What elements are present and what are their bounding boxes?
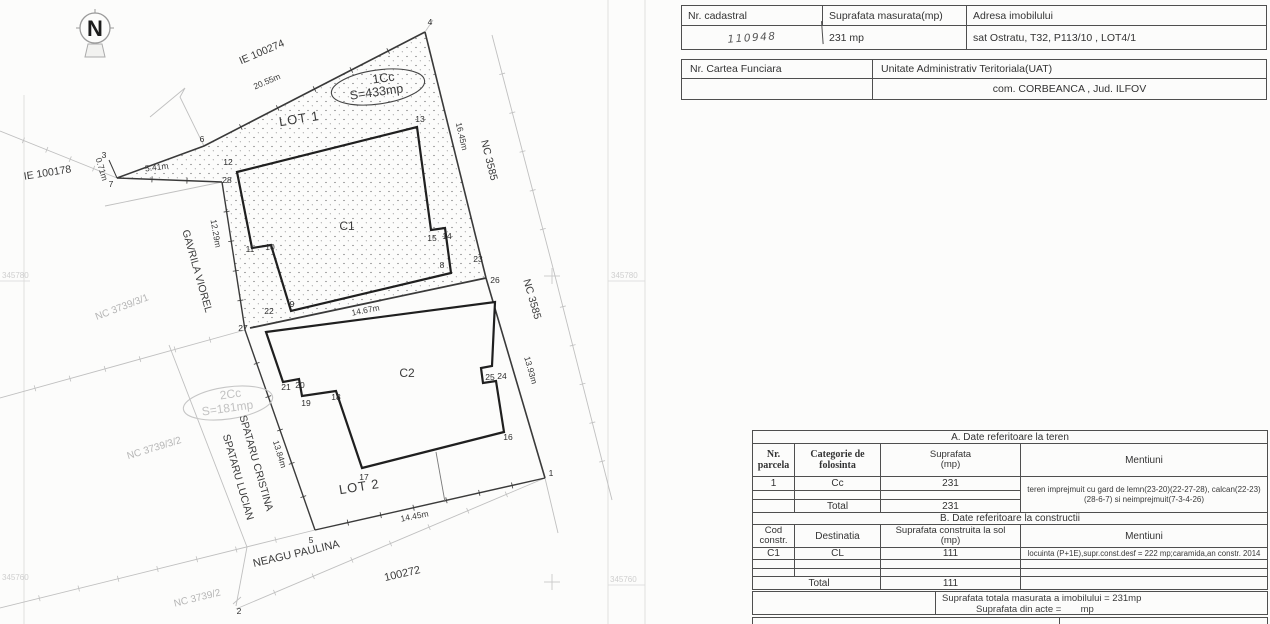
total-measured-surface-line: Suprafata totala masurata a imobilului =… xyxy=(942,593,1141,604)
owner-neagu-paulina: NEAGU PAULINA xyxy=(252,538,342,570)
uat-value: com. CORBEANCA , Jud. ILFOV xyxy=(873,79,1266,99)
point-label-9: 9 xyxy=(290,299,295,309)
point-label-10: 10 xyxy=(265,242,275,252)
section-a-title: A. Date referitoare la teren xyxy=(753,431,1267,444)
land-total-label: Total xyxy=(795,500,881,513)
col-header-construction-code: Cod constr. xyxy=(753,525,795,548)
point-label-8: 8 xyxy=(440,260,445,270)
built-surface-cell: 111 xyxy=(881,548,1021,560)
lot2-inner-line xyxy=(436,452,445,502)
empty-cell xyxy=(881,491,1021,500)
north-letter: N xyxy=(87,16,103,41)
destination-cell: CL xyxy=(795,548,881,560)
point-label-26: 26 xyxy=(490,275,500,285)
dim-12-29m: 12.29m xyxy=(209,219,224,249)
neighbor-ie100178: IE 100178 xyxy=(23,163,72,182)
point-label-18: 18 xyxy=(331,392,341,402)
construction-mentions-cell: locuinta (P+1E),supr.const.desf = 222 mp… xyxy=(1021,548,1267,560)
point-label-24: 24 xyxy=(497,371,507,381)
dim-13-93m: 13.93m xyxy=(522,355,539,385)
point-label-20: 20 xyxy=(295,380,305,390)
empty-cell xyxy=(1021,569,1267,577)
col-header-parcel-number: Nr. parcela xyxy=(753,444,795,477)
col-header-construction-mentions: Mentiuni xyxy=(1021,525,1267,548)
measured-surface-value: 231 mp xyxy=(823,26,967,49)
point-label-19: 19 xyxy=(301,398,311,408)
address-value: sat Ostratu, T32, P113/10 , LOT4/1 xyxy=(967,26,1266,49)
dim-14-45m: 14.45m xyxy=(400,508,430,523)
empty-cell xyxy=(1021,560,1267,569)
owner-gavrila-viorel: GAVRILA VIOREL xyxy=(179,228,214,314)
point-label-12: 12 xyxy=(223,157,233,167)
neighbor-100272: 100272 xyxy=(383,564,421,584)
point-label-14: 14 xyxy=(442,231,452,241)
cadastral-header-table: Nr. cadastral Suprafata masurata(mp) Adr… xyxy=(681,5,1267,50)
cadastral-plan-document: N LOT 1 LOT 2 C1 C2 1Cc S=433mp 2Cc S=18… xyxy=(0,0,1270,624)
empty-cell xyxy=(753,560,795,569)
point-label-15: 15 xyxy=(427,233,437,243)
grid-coord-bottomleft: 345760 xyxy=(2,573,29,582)
survey-map: N LOT 1 LOT 2 C1 C2 1Cc S=433mp 2Cc S=18… xyxy=(0,0,665,624)
footer-empty-cell xyxy=(753,592,936,614)
construction-total-label: Total xyxy=(753,577,881,589)
point-label-23: 23 xyxy=(473,254,483,264)
point-label-11: 11 xyxy=(246,244,255,254)
empty-cell xyxy=(753,491,795,500)
point-label-4: 4 xyxy=(428,17,433,27)
neighbor-nc3585-upper: NC 3585 xyxy=(478,139,500,182)
point-label-5: 5 xyxy=(309,535,314,545)
dim-20-55m: 20.55m xyxy=(252,71,282,91)
point-label-21: 21 xyxy=(281,382,291,392)
point-label-17: 17 xyxy=(359,472,369,482)
land-mentions-cell: teren imprejmuit cu gard de lemn(23-20)(… xyxy=(1021,477,1267,513)
empty-cell xyxy=(795,560,881,569)
section-b-title: B. Date referitoare la constructii xyxy=(753,513,1267,525)
use-category-cell: Cc xyxy=(795,477,881,491)
deed-surface-label: Suprafata din acte = xyxy=(976,604,1061,615)
point-label-6: 6 xyxy=(200,134,205,144)
building-c2-label: C2 xyxy=(399,366,415,380)
uat-header: Unitate Administrativ Teritoriala(UAT) xyxy=(873,60,1266,79)
point-label-16: 16 xyxy=(503,432,513,442)
grid-crosses xyxy=(544,268,560,590)
col-header-built-surface: Suprafata construita la sol (mp) xyxy=(881,525,1021,548)
col-header-surface: Suprafata (mp) xyxy=(881,444,1021,477)
land-total-surface: 231 xyxy=(881,500,1021,513)
parcel-surface-cell: 231 xyxy=(881,477,1021,491)
building-c1-label: C1 xyxy=(339,219,355,233)
truncated-row-divider xyxy=(1059,618,1060,624)
point-label-3: 3 xyxy=(102,150,107,160)
empty-cell xyxy=(753,569,795,577)
truncated-bottom-row xyxy=(752,617,1268,624)
col-header-use-category: Categorie de folosinta xyxy=(795,444,881,477)
land-book-number-value xyxy=(682,79,873,99)
deed-surface-unit: mp xyxy=(1081,604,1094,615)
lot1-stipple-area xyxy=(117,32,486,330)
point-label-1: 1 xyxy=(549,468,554,478)
grid-coord-bottomright: 345760 xyxy=(610,575,637,584)
empty-cell xyxy=(753,500,795,513)
address-header: Adresa imobilului xyxy=(967,6,1266,26)
point-label-13: 13 xyxy=(415,114,425,124)
point-label-22: 22 xyxy=(264,306,274,316)
grid-coord-topleft: 345780 xyxy=(2,271,29,280)
empty-cell xyxy=(795,491,881,500)
point-label-28: 28 xyxy=(222,175,232,185)
neighbor-nc3739-3-1: NC 3739/3/1 xyxy=(94,292,151,323)
empty-cell xyxy=(795,569,881,577)
dim-16-45m: 16.45m xyxy=(454,121,470,151)
land-book-table: Nr. Cartea Funciara Unitate Administrati… xyxy=(681,59,1267,100)
col-header-mentions: Mentiuni xyxy=(1021,444,1267,477)
grid-coord-topright: 345780 xyxy=(611,271,638,280)
empty-cell xyxy=(1021,577,1267,589)
cadastral-number-value: 110948 xyxy=(681,21,823,54)
point-label-27: 27 xyxy=(238,323,248,333)
point-label-2: 2 xyxy=(237,606,242,616)
parcel-number-cell: 1 xyxy=(753,477,795,491)
col-header-destination: Destinatia xyxy=(795,525,881,548)
construction-total-surface: 111 xyxy=(881,577,1021,589)
neighbor-nc3739-3-2: NC 3739/3/2 xyxy=(126,435,183,462)
total-surface-footer: Suprafata totala masurata a imobilului =… xyxy=(752,591,1268,615)
empty-cell xyxy=(881,569,1021,577)
dim-13-84m: 13.84m xyxy=(271,439,289,469)
measured-surface-header: Suprafata masurata(mp) xyxy=(823,6,967,26)
land-book-number-header: Nr. Cartea Funciara xyxy=(682,60,873,79)
construction-code-cell: C1 xyxy=(753,548,795,560)
neighbor-ie100274: IE 100274 xyxy=(237,37,286,67)
land-and-constructions-table: A. Date referitoare la teren Nr. parcela… xyxy=(752,430,1268,590)
north-compass: N xyxy=(76,9,114,57)
point-label-25: 25 xyxy=(485,372,495,382)
neighbor-nc3585-lower: NC 3585 xyxy=(520,278,543,321)
point-label-7: 7 xyxy=(109,179,114,189)
neighbor-nc3739-2: NC 3739/2 xyxy=(173,587,222,609)
empty-cell xyxy=(881,560,1021,569)
